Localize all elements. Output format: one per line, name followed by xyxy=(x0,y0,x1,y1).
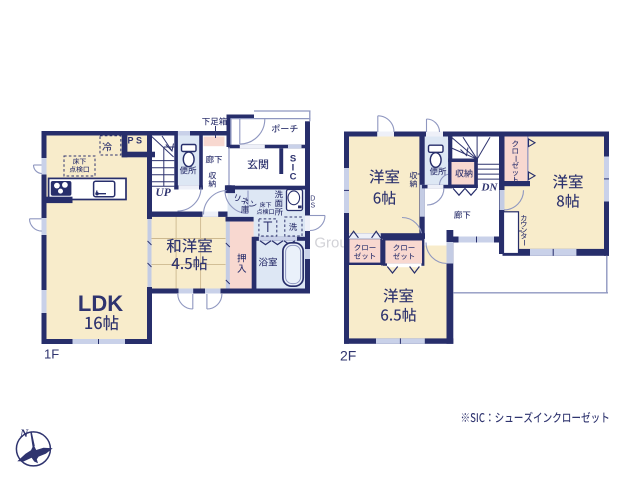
svg-text:C: C xyxy=(290,172,297,183)
svg-text:1F: 1F xyxy=(44,347,59,362)
svg-text:N: N xyxy=(19,428,29,440)
svg-text:UP: UP xyxy=(156,187,172,199)
svg-text:2F: 2F xyxy=(340,348,356,364)
svg-text:S: S xyxy=(310,203,315,210)
svg-text:LDK: LDK xyxy=(78,291,123,316)
svg-text:D: D xyxy=(310,196,315,203)
svg-text:PS: PS xyxy=(128,136,145,146)
svg-text:DN: DN xyxy=(481,181,499,193)
